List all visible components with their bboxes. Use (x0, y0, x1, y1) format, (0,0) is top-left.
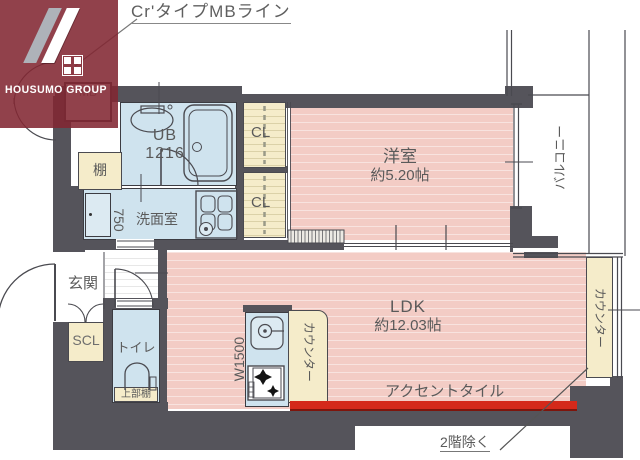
ldk-size: 約12.03帖 (338, 317, 478, 334)
wall-under-toilet (103, 402, 168, 416)
plan-type-header: Cr'タイプMBライン (131, 2, 291, 24)
ldk-name: LDK (338, 297, 478, 317)
ldk-label: LDK 約12.03帖 (338, 297, 478, 334)
western-room-name: 洋室 (330, 147, 470, 167)
window-mask (513, 248, 586, 252)
toilet-label: トイレ (113, 341, 159, 356)
balcony-label: バルコニー (554, 112, 569, 202)
ub-label: UB 1216 (132, 127, 198, 164)
wall-corner-tr (505, 86, 533, 108)
ub-label-line1: UB (132, 127, 198, 145)
accent-tile-stripe (290, 401, 577, 411)
closet-1-label: CL (251, 124, 270, 141)
logo-window-icon (62, 55, 83, 76)
dim-750-label: 750 (111, 200, 127, 240)
accent-tile-label: アクセントタイル (385, 383, 504, 400)
entrance-label: 玄関 (62, 275, 104, 292)
right-counter-label: カウンター (592, 278, 606, 358)
kitchen-counter-label: カウンター (301, 312, 315, 392)
wall-left-mid (55, 186, 85, 252)
closet-2-label: CL (251, 194, 270, 211)
wall-br-block (570, 386, 623, 458)
kitchen-width-label: W1500 (231, 329, 247, 389)
wall-divider-yoshitsu-bar (283, 243, 344, 250)
logo-text: HOUSUMO GROUP (5, 84, 108, 96)
wall-bottom-left (53, 411, 355, 450)
ub-label-line2: 1216 (132, 145, 198, 163)
note-2f-label: 2階除く (440, 434, 490, 452)
shelf-label: 棚 (78, 162, 122, 178)
wall-bl-chunk (68, 362, 105, 415)
scl-label: SCL (68, 332, 104, 348)
kitchen-top-bar (243, 305, 292, 312)
floor-plan: MB UB 1216 棚 洗面室 750 CL CL 洋室 約5.20帖 バルコ… (0, 0, 640, 460)
wall-toilet-left (103, 308, 112, 404)
logo-block: HOUSUMO GROUP (0, 0, 118, 128)
kitchen-unit (245, 312, 289, 407)
washroom-label: 洗面室 (136, 211, 178, 227)
washroom-door-knob (89, 213, 92, 216)
western-room-size: 約5.20帖 (330, 167, 470, 184)
upper-shelf-label: 上部棚 (114, 389, 158, 401)
western-room-label: 洋室 約5.20帖 (330, 147, 470, 184)
entrance-door-arc (0, 264, 55, 321)
wall-step-right (524, 236, 558, 258)
